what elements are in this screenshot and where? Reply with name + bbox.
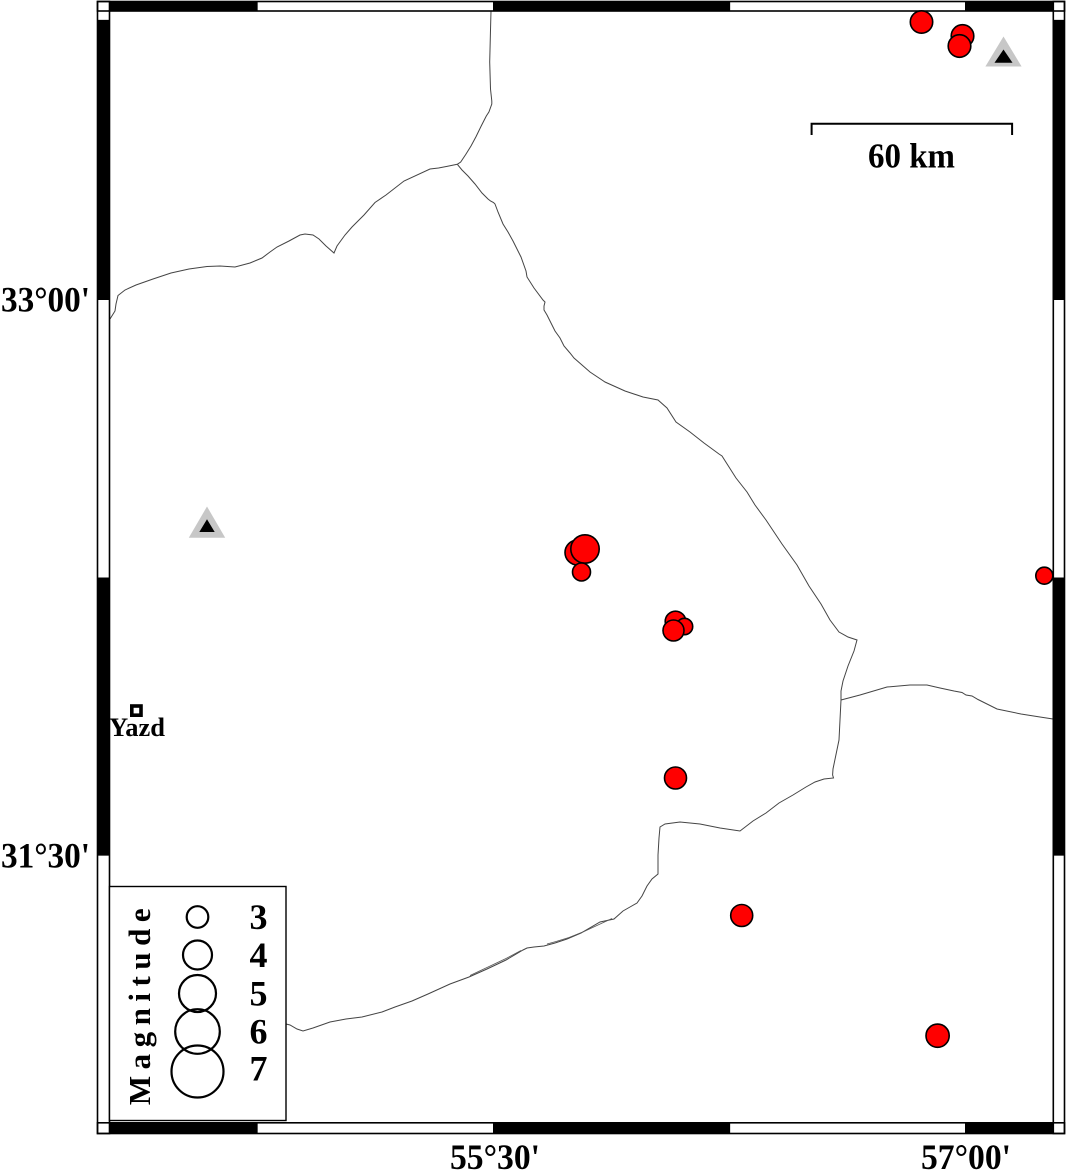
svg-text:60 km: 60 km [868,137,955,176]
svg-text:Magnitude: Magnitude [122,902,157,1105]
svg-text:31°30': 31°30' [1,836,90,876]
svg-text:33°00': 33°00' [1,280,90,320]
svg-text:3: 3 [250,897,268,937]
svg-text:5: 5 [250,974,268,1014]
svg-text:57°00': 57°00' [921,1137,1011,1172]
svg-text:6: 6 [250,1012,268,1052]
svg-text:Yazd: Yazd [109,713,166,742]
svg-text:4: 4 [250,935,268,975]
svg-text:7: 7 [250,1049,268,1089]
svg-text:55°30': 55°30' [450,1137,540,1172]
